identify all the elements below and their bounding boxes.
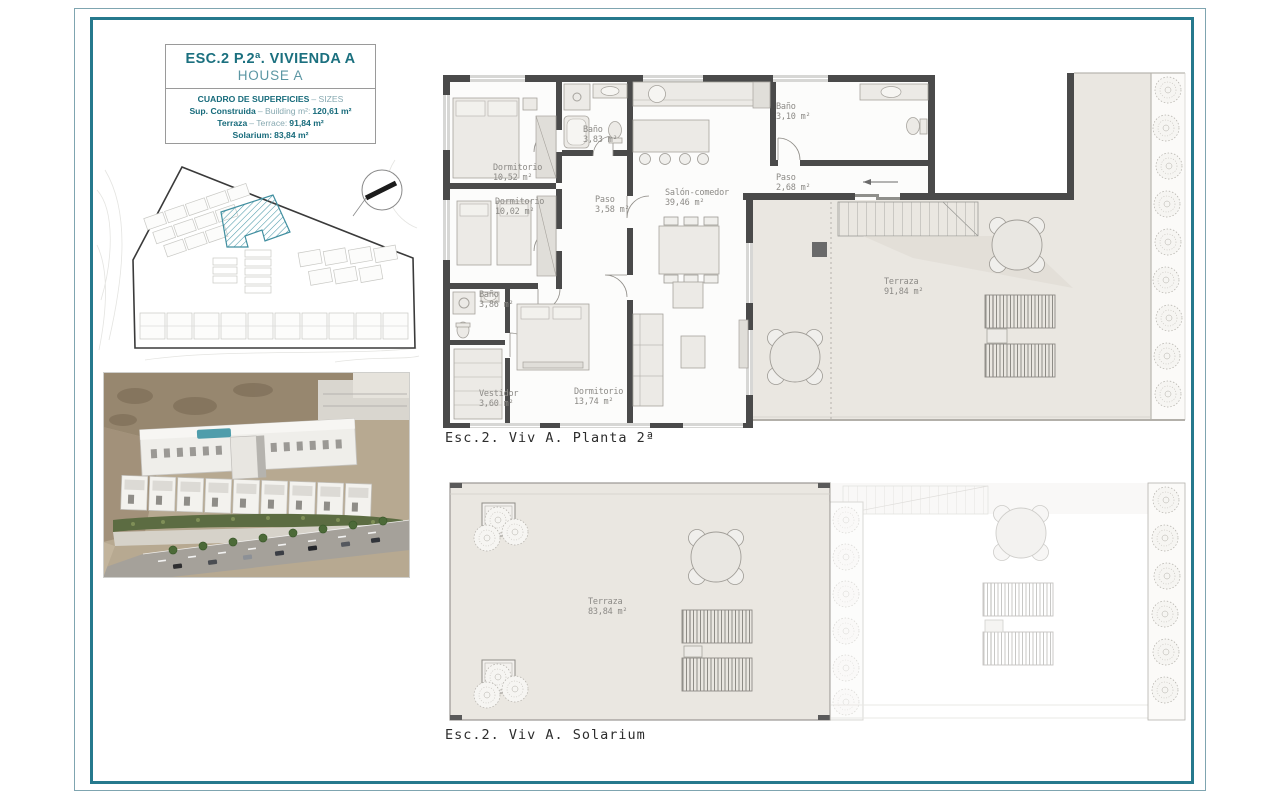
terrace-table-set-2 bbox=[768, 330, 823, 385]
plan-title: ESC.2 P.2ª. VIVIENDA A bbox=[166, 51, 375, 67]
row1-label-es: Terraza bbox=[217, 118, 247, 128]
surface-table-header: CUADRO DE SUPERFICIES– SIZES bbox=[166, 93, 375, 105]
title-block: ESC.2 P.2ª. VIVIENDA A HOUSE A CUADRO DE… bbox=[165, 44, 376, 144]
room-label-dormitorio3-name: Dormitorio bbox=[574, 387, 623, 397]
solarium-table-set bbox=[689, 530, 744, 585]
room-label-salon-name: Salón-comedor bbox=[665, 187, 729, 198]
room-label-bano310-name: Baño bbox=[776, 102, 796, 112]
row2-value: 83,84 m² bbox=[274, 130, 308, 140]
solarium-side-table bbox=[684, 646, 702, 657]
room-label-paso358-name: Paso bbox=[595, 195, 615, 205]
surface-row-solarium: Solarium:83,84 m² bbox=[166, 129, 375, 141]
terrace-table-set-1 bbox=[990, 218, 1045, 273]
plan-subtitle: HOUSE A bbox=[166, 68, 375, 83]
room-label-paso268-area: 2,68 m² bbox=[776, 183, 810, 193]
caption-solarium: Esc.2. Viv A. Solarium bbox=[445, 727, 646, 743]
room-label-terraza-area: 91,84 m² bbox=[884, 287, 923, 297]
room-label-dormitorio2-area: 10,02 m² bbox=[495, 207, 534, 217]
dining-set bbox=[659, 217, 719, 283]
master-bedroom-furniture bbox=[517, 304, 589, 370]
central-tower bbox=[230, 436, 258, 479]
room-label-bano310-area: 3,10 m² bbox=[776, 112, 810, 122]
row2-label-es: Solarium: bbox=[232, 130, 272, 140]
solarium-label-area: 83,84 m² bbox=[588, 607, 627, 617]
room-label-dormitorio2-name: Dormitorio bbox=[495, 197, 544, 207]
room-label-salon-area: 39,46 m² bbox=[665, 198, 704, 208]
aerial-photo bbox=[103, 372, 410, 578]
side-table bbox=[987, 329, 1007, 343]
drain-box bbox=[812, 242, 827, 257]
surface-row-terrace: Terraza– Terrace:91,84 m² bbox=[166, 117, 375, 129]
surface-header-es: CUADRO DE SUPERFICIES bbox=[198, 94, 310, 104]
surface-header-en: – SIZES bbox=[311, 94, 343, 104]
title-block-header: ESC.2 P.2ª. VIVIENDA A HOUSE A bbox=[166, 45, 375, 89]
room-label-vestidor-name: Vestidor bbox=[479, 389, 518, 399]
sun-lounger-1 bbox=[985, 295, 1055, 328]
solarium-label-name: Terraza bbox=[588, 597, 623, 607]
row1-label-en: – Terrace: bbox=[249, 118, 287, 128]
planter-plants bbox=[1153, 77, 1182, 407]
row0-label-es: Sup. Construida bbox=[189, 106, 255, 116]
solarium-lounger-1 bbox=[682, 610, 752, 643]
room-label-bano383-area: 3,83 m² bbox=[583, 135, 617, 145]
room-label-bano386-area: 3,86 m² bbox=[479, 300, 513, 310]
room-label-vestidor-area: 3,60 m² bbox=[479, 399, 513, 409]
row0-value: 120,61 m² bbox=[312, 106, 351, 116]
row1-value: 91,84 m² bbox=[289, 118, 323, 128]
room-label-dormitorio1-name: Dormitorio bbox=[493, 163, 542, 173]
room-label-terraza-name: Terraza bbox=[884, 277, 919, 287]
room-label-bano386-name: Baño bbox=[479, 290, 499, 300]
room-label-paso268-name: Paso bbox=[776, 173, 796, 183]
room-label-paso358-area: 3,58 m² bbox=[595, 205, 629, 215]
surface-row-building: Sup. Construida– Building m²:120,61 m² bbox=[166, 105, 375, 117]
row0-label-en: – Building m²: bbox=[258, 106, 311, 116]
sun-lounger-2 bbox=[985, 344, 1055, 377]
pool bbox=[197, 428, 231, 439]
site-plan bbox=[95, 150, 420, 365]
caption-planta2: Esc.2. Viv A. Planta 2ª bbox=[445, 430, 655, 446]
floor-plan-solarium: Terraza 83,84 m² bbox=[443, 480, 1188, 725]
solarium-lounger-2 bbox=[682, 658, 752, 691]
surface-table: CUADRO DE SUPERFICIES– SIZES Sup. Constr… bbox=[166, 89, 375, 141]
right-planter-strip bbox=[1148, 483, 1185, 720]
room-label-dormitorio1-area: 10,52 m² bbox=[493, 173, 532, 183]
north-arrow-icon bbox=[353, 170, 402, 216]
floor-plan-planta2: Dormitorio 10,52 m² Dormitorio 10,02 m² … bbox=[443, 68, 1188, 428]
room-label-bano383-name: Baño bbox=[583, 125, 603, 135]
neighbor-solarium-ghost bbox=[830, 483, 1185, 720]
kitchen-island bbox=[633, 120, 709, 152]
room-label-dormitorio3-area: 13,74 m² bbox=[574, 397, 613, 407]
